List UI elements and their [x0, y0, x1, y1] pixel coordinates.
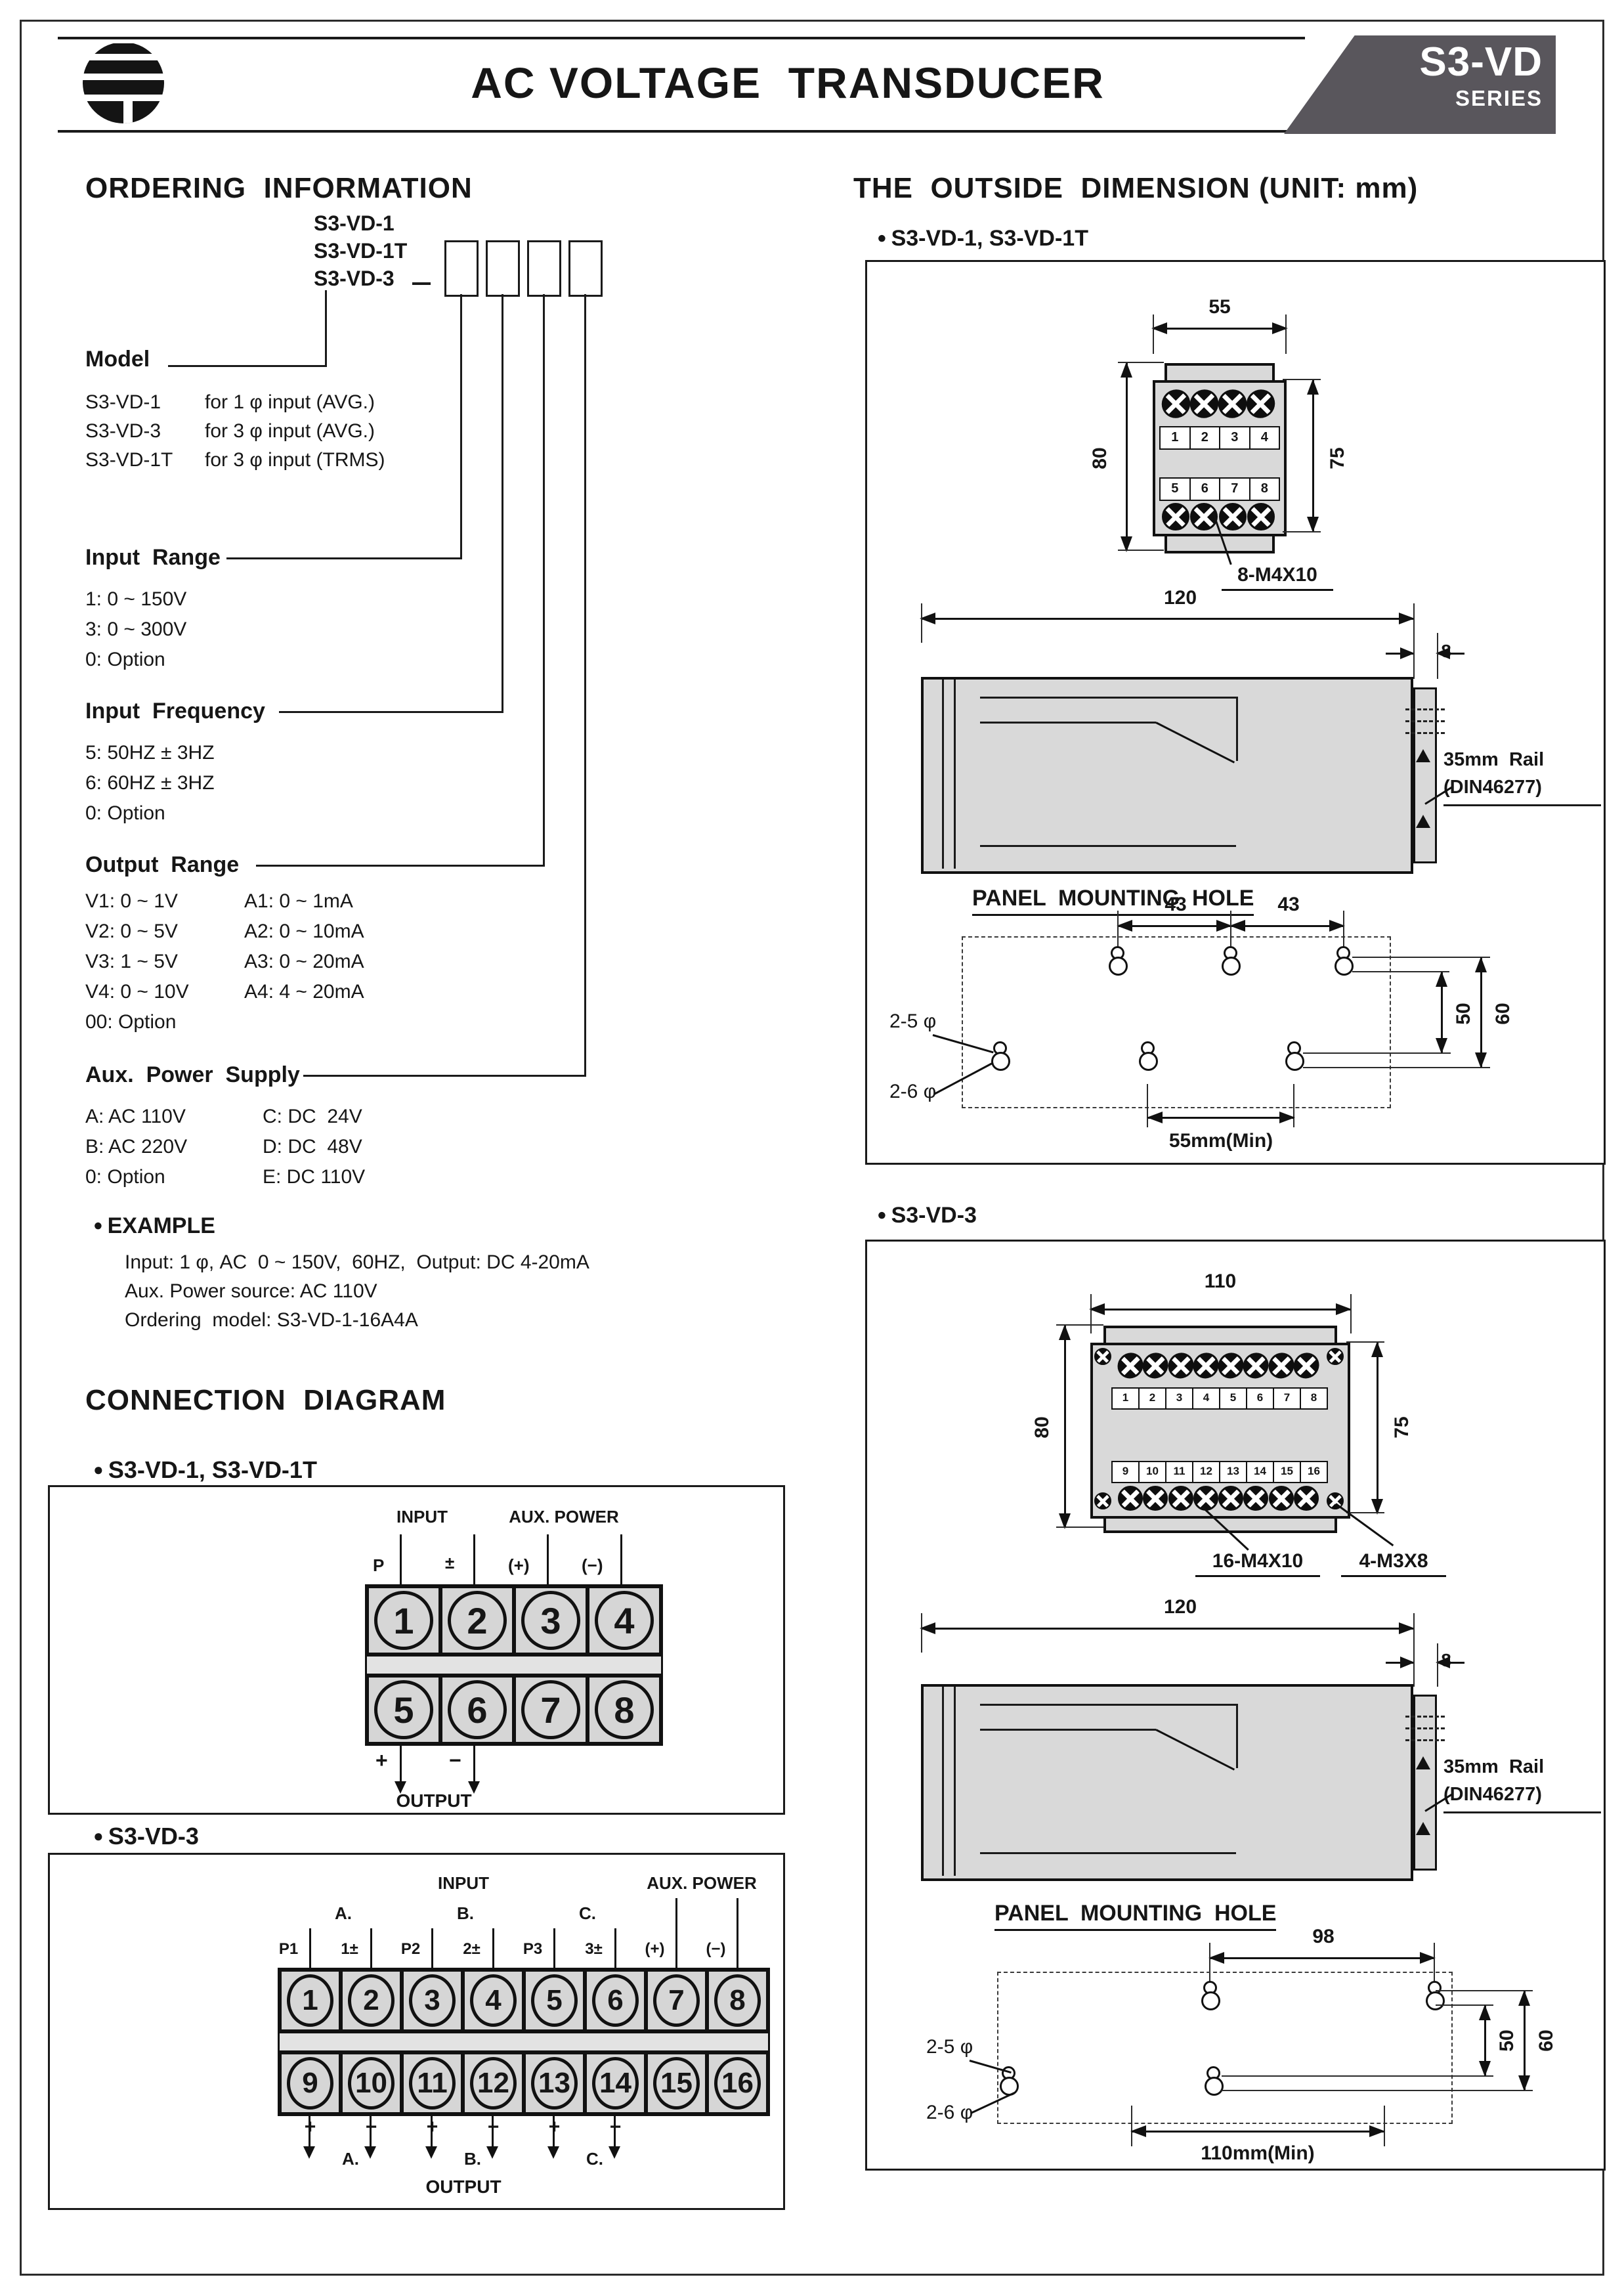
terminal: 3: [402, 1970, 463, 2031]
input-range-label: Input Range: [85, 545, 221, 571]
dim-width-label: 55: [1190, 296, 1249, 318]
keyhole-icon: [1201, 1981, 1218, 2010]
output-sign-row: +−+−+−: [280, 2116, 646, 2138]
pin-label: ±: [445, 1553, 454, 1573]
terminal: 14: [585, 2052, 646, 2114]
terminal: 9: [280, 2052, 341, 2114]
detail-line: [980, 1852, 1236, 1854]
rail-label-underline: [1443, 1811, 1601, 1813]
connector-line: [303, 1075, 584, 1077]
terminal-row-1: 1234: [367, 1586, 661, 1655]
diagram1-aux-label: AUX. POWER: [502, 1507, 626, 1527]
dimension-line: [921, 618, 1413, 620]
example-line: Ordering model: S3-VD-1-16A4A: [125, 1309, 418, 1332]
dim-label: 50: [1496, 2024, 1518, 2057]
keyhole-icon: [1426, 1981, 1443, 2010]
dimension-arrow: [1437, 1662, 1464, 1664]
dimension-line: [1524, 1991, 1526, 2090]
detail-line: [980, 1729, 1156, 1731]
unit-side-body: [921, 1684, 1413, 1881]
terminal-number: 3: [1166, 1389, 1193, 1408]
extension-line: [1352, 971, 1449, 972]
dim-label: 98: [1297, 1926, 1350, 1948]
hole-spec-label: 2-5 φ: [926, 2036, 973, 2058]
diagram1-input-label: INPUT: [373, 1507, 471, 1527]
keyhole-icon: [1139, 1041, 1156, 1071]
terminal-number: 8: [1250, 479, 1279, 500]
pin-label: P: [373, 1555, 384, 1576]
terminal: 11: [402, 2052, 463, 2114]
pin-label: 2±: [441, 1940, 502, 1959]
diagram2-frame: INPUT AUX. POWER A. B. C. P11±P22±P33±(+…: [48, 1853, 785, 2210]
terminal: 2: [440, 1586, 514, 1655]
pin-label: (+): [508, 1555, 530, 1576]
output-arrow: [370, 2113, 372, 2148]
terminal: 4: [588, 1586, 661, 1655]
detail-line: [1236, 1704, 1238, 1768]
input-range-item: 0: Option: [85, 649, 165, 671]
output-range-item: A1: 0 ~ 1mA: [244, 890, 353, 913]
model-row-code: S3-VD-1T: [85, 449, 173, 471]
corner-screw-label: 4-M3X8: [1341, 1550, 1446, 1577]
diagram1-frame: INPUT AUX. POWER P ± (+) (−) 1234 5678 +…: [48, 1485, 785, 1815]
output-arrow: [400, 1744, 402, 1783]
dimension-line: [921, 1628, 1413, 1630]
output-plus-sign: +: [375, 1748, 388, 1773]
keyhole-icon: [991, 1041, 1008, 1071]
extension-line: [1437, 1643, 1438, 1687]
dimension-arrow: [1437, 653, 1464, 655]
terminal-number: 4: [1250, 427, 1279, 448]
dim-height-label: 75: [1327, 442, 1349, 475]
extension-line: [1350, 1294, 1352, 1333]
terminal-number: 14: [1247, 1462, 1274, 1482]
terminal: 12: [463, 2052, 524, 2114]
pin-label-row: P11±P22±P33±(+)(−): [258, 1940, 746, 1959]
extension-line: [921, 1613, 922, 1653]
diagram2-output-label: OUTPUT: [414, 2177, 513, 2198]
extension-line: [1346, 1341, 1384, 1343]
logo-t-gap: [123, 101, 133, 123]
aux-power-label: Aux. Power Supply: [85, 1062, 300, 1088]
extension-line: [1118, 550, 1164, 551]
detail-line: [980, 845, 1236, 847]
dim-label: 43: [1153, 894, 1199, 916]
connector-line: [279, 711, 503, 713]
terminal-row-2: 5678: [367, 1676, 661, 1744]
detail-line: [980, 722, 1156, 724]
terminal: 10: [341, 2052, 402, 2114]
extension-line: [1118, 362, 1164, 363]
dimension-line: [1132, 2131, 1384, 2133]
dim-height-label: 80: [1089, 442, 1111, 475]
rail-mark: [1405, 708, 1445, 710]
phase-label: B.: [464, 2149, 481, 2169]
input-range-item: 3: 0 ~ 300V: [85, 618, 186, 641]
example-label: EXAMPLE: [93, 1213, 215, 1239]
diagram1-bullet: S3-VD-1, S3-VD-1T: [93, 1456, 317, 1484]
dimension-line: [1148, 1117, 1294, 1119]
extension-line: [1413, 1643, 1415, 1687]
aux-power-item: 0: Option: [85, 1166, 165, 1188]
order-model-3: S3-VD-3: [314, 267, 395, 291]
dimension-line: [1153, 328, 1287, 330]
screw-icon: [1289, 1481, 1324, 1516]
connection-heading: CONNECTION DIAGRAM: [85, 1384, 446, 1417]
phase-label: A.: [335, 1903, 352, 1924]
terminal: 8: [588, 1676, 661, 1744]
dim-label: 43: [1266, 894, 1312, 916]
connector-line: [325, 290, 327, 367]
dimension-line: [1126, 363, 1128, 551]
extension-line: [1056, 1527, 1103, 1528]
dim-width-label: 110: [1187, 1270, 1253, 1293]
output-arrow: [553, 2113, 555, 2148]
panel-hole-heading: PANEL MOUNTING HOLE: [972, 886, 1254, 916]
input-range-item: 1: 0 ~ 150V: [85, 588, 186, 611]
extension-line: [1222, 2090, 1533, 2091]
connector-line: [460, 294, 462, 559]
extension-line: [1222, 2075, 1493, 2077]
wire-line: [473, 1534, 475, 1584]
output-arrow: [614, 2113, 616, 2148]
order-dash: [412, 282, 431, 285]
aux-power-item: C: DC 24V: [263, 1106, 362, 1128]
extension-line: [1153, 314, 1154, 354]
phase-label: B.: [457, 1903, 474, 1924]
aux-power-item: E: DC 110V: [263, 1166, 365, 1188]
dimension-line: [1377, 1343, 1378, 1513]
terminal-number: 3: [1220, 427, 1250, 448]
terminal-number: 11: [1166, 1462, 1193, 1482]
dim1-frame: 55 1234 5678 80 75 8-M4X10 120 8: [865, 260, 1606, 1165]
terminal: 3: [514, 1586, 588, 1655]
dimension-line: [1231, 925, 1344, 927]
pin-label: P2: [380, 1940, 441, 1959]
terminal-number: 6: [1191, 479, 1221, 500]
terminal: 8: [707, 1970, 768, 2031]
rail-label: (DIN46277): [1443, 777, 1542, 798]
dim-width-label: 120: [1144, 587, 1216, 609]
output-arrow: [431, 2113, 433, 2148]
page-title: AC VOLTAGE TRANSDUCER: [276, 58, 1300, 108]
terminal-number: 2: [1140, 1389, 1166, 1408]
input-frequency-label: Input Frequency: [85, 699, 265, 724]
wire-line: [400, 1534, 402, 1584]
keyhole-icon: [1109, 946, 1126, 976]
terminal: 5: [524, 1970, 585, 2031]
terminal: 2: [341, 1970, 402, 2031]
output-arrow: [309, 2113, 310, 2148]
extension-line: [1285, 314, 1287, 354]
pin-label: 1±: [319, 1940, 380, 1959]
wire-line: [547, 1534, 549, 1584]
phase-label: C.: [579, 1903, 596, 1924]
rail-clip-icon: [1416, 815, 1430, 828]
model-section-label: Model: [85, 347, 150, 372]
terminal-number: 5: [1220, 1389, 1247, 1408]
example-line: Input: 1 φ, AC 0 ~ 150V, 60HZ, Output: D…: [125, 1251, 589, 1274]
detail-line: [1236, 697, 1238, 761]
input-frequency-item: 5: 50HZ ± 3HZ: [85, 742, 215, 764]
dimension-arrow: [1386, 1662, 1413, 1664]
input-frequency-item: 6: 60HZ ± 3HZ: [85, 772, 215, 794]
extension-line: [1283, 379, 1321, 380]
keyhole-icon: [1222, 946, 1239, 976]
terminal-number: 6: [1247, 1389, 1274, 1408]
diagram2-aux-label: AUX. POWER: [639, 1873, 764, 1894]
terminal-block: 12345678 910111213141516: [278, 1968, 770, 2116]
detail-line: [942, 680, 944, 869]
dimension-line: [1064, 1326, 1066, 1528]
output-range-item: A2: 0 ~ 10mA: [244, 921, 364, 943]
dimension-line: [1118, 925, 1231, 927]
pin-label: 3±: [563, 1940, 624, 1959]
dimension-line: [1441, 972, 1443, 1052]
pin-label: P1: [258, 1940, 319, 1959]
diagram2-bullet: S3-VD-3: [93, 1823, 199, 1850]
order-code-box-4: [568, 240, 603, 297]
order-code-box-3: [527, 240, 561, 297]
screw-row: [1162, 388, 1275, 420]
model-row-code: S3-VD-3: [85, 420, 161, 443]
dimension-line: [1480, 958, 1482, 1067]
dim2-bullet: S3-VD-3: [877, 1203, 977, 1228]
terminal-number: 10: [1140, 1462, 1166, 1482]
terminal: 4: [463, 1970, 524, 2031]
terminal-number: 4: [1193, 1389, 1220, 1408]
terminal: 1: [367, 1586, 440, 1655]
dim-height-label: 75: [1391, 1411, 1413, 1444]
rail-mark: [1405, 1727, 1445, 1729]
connector-line: [584, 294, 586, 1077]
header-rule-bottom: [58, 130, 1305, 133]
rail-label: (DIN46277): [1443, 1784, 1542, 1806]
output-arrow: [492, 2113, 494, 2148]
terminal: 16: [707, 2052, 768, 2114]
dimension-arrow: [1386, 653, 1413, 655]
terminal: 6: [440, 1676, 514, 1744]
diagram1-output-label: OUTPUT: [339, 1790, 529, 1811]
rail-label: 35mm Rail: [1443, 749, 1544, 771]
min-width-label: 110mm(Min): [1169, 2142, 1346, 2165]
terminal: 15: [646, 2052, 707, 2114]
rail-mark: [1405, 1716, 1445, 1718]
extension-line: [1056, 1324, 1103, 1326]
extension-line: [1303, 1067, 1490, 1068]
terminal-number: 2: [1191, 427, 1221, 448]
rail-clip-icon: [1416, 749, 1430, 762]
unit-cap: [1165, 534, 1275, 553]
terminal-number: 5: [1161, 479, 1191, 500]
detail-line: [942, 1687, 944, 1876]
panel-outline: [997, 1972, 1453, 2124]
screw-spec-label: 16-M4X10: [1195, 1550, 1320, 1577]
terminal-number: 9: [1113, 1462, 1140, 1482]
terminal-number: 15: [1274, 1462, 1301, 1482]
rail-mark: [1405, 732, 1445, 734]
wire-line: [675, 1898, 677, 1970]
rail-mark: [1405, 1739, 1445, 1741]
dim-width-label: 120: [1144, 1596, 1216, 1618]
terminal-number: 12: [1193, 1462, 1220, 1482]
pin-label: (+): [624, 1940, 685, 1959]
logo-stripe: [83, 43, 164, 54]
extension-line: [1352, 957, 1490, 958]
rail-clip-icon: [1416, 1756, 1430, 1769]
diagram2-input-label: INPUT: [417, 1873, 509, 1894]
extension-line: [1413, 633, 1415, 679]
terminal: 7: [646, 1970, 707, 2031]
model-row-desc: for 3 φ input (TRMS): [205, 449, 385, 471]
unit-side-body: [921, 677, 1413, 874]
hole-spec-label: 2-6 φ: [889, 1081, 936, 1103]
header-rule-top: [58, 37, 1305, 39]
wire-line: [737, 1898, 738, 1970]
terminal-separator: [367, 1655, 661, 1676]
terminal-row-1: 12345678: [280, 1970, 768, 2031]
output-range-item: A4: 4 ~ 20mA: [244, 981, 364, 1003]
terminal-row-2: 910111213141516: [280, 2052, 768, 2114]
output-range-item: A3: 0 ~ 20mA: [244, 951, 364, 973]
terminal-number: 13: [1220, 1462, 1247, 1482]
dim-label: 60: [1535, 2024, 1558, 2057]
pin-label: (−): [685, 1940, 746, 1959]
panel-outline: [962, 936, 1391, 1108]
terminal: 13: [524, 2052, 585, 2114]
pin-label: (−): [582, 1555, 603, 1576]
dim-label: 50: [1453, 997, 1475, 1030]
wire-line: [620, 1534, 622, 1584]
terminal-number: 7: [1274, 1389, 1301, 1408]
dimension-heading: THE OUTSIDE DIMENSION (UNIT: mm): [853, 172, 1418, 205]
keyhole-icon: [1335, 946, 1352, 976]
example-line: Aux. Power source: AC 110V: [125, 1280, 377, 1303]
dim2-frame: 110 12345678 910111213141516 80 75 16-M4…: [865, 1240, 1606, 2171]
terminal-number: 16: [1301, 1462, 1327, 1482]
output-range-item: V1: 0 ~ 1V: [85, 890, 178, 913]
connector-line: [256, 865, 544, 867]
dimension-line: [1210, 1957, 1434, 1959]
aux-power-item: D: DC 48V: [263, 1136, 362, 1158]
series-badge-series: SERIES: [1284, 85, 1543, 112]
terminal: 5: [367, 1676, 440, 1744]
output-arrow: [473, 1744, 475, 1783]
terminal-number: 7: [1220, 479, 1250, 500]
aux-power-item: A: AC 110V: [85, 1106, 186, 1128]
hole-spec-label: 2-6 φ: [926, 2102, 973, 2124]
dimension-line: [1312, 380, 1314, 531]
screw-row: [1118, 1351, 1319, 1381]
detail-line: [980, 1704, 1236, 1706]
terminal-strip: 910111213141516: [1111, 1461, 1328, 1483]
keyhole-icon: [1285, 1041, 1302, 1071]
extension-line: [921, 603, 922, 643]
output-range-item: V3: 1 ~ 5V: [85, 951, 178, 973]
extension-line: [1303, 1052, 1451, 1054]
terminal: 7: [514, 1676, 588, 1744]
phase-label: A.: [342, 2149, 359, 2169]
logo-stripe: [83, 60, 164, 74]
order-model-1: S3-VD-1: [314, 211, 395, 236]
output-range-item: V2: 0 ~ 5V: [85, 921, 178, 943]
terminal-number: 1: [1161, 427, 1191, 448]
order-code-box-1: [444, 240, 479, 297]
connector-line: [543, 294, 545, 867]
connector-line: [226, 557, 461, 559]
connector-line: [168, 365, 326, 367]
terminal-separator: [280, 2031, 768, 2052]
aux-power-item: B: AC 220V: [85, 1136, 187, 1158]
terminal-strip: 5678: [1159, 477, 1280, 501]
rail-label-underline: [1443, 804, 1601, 806]
min-width-label: 55mm(Min): [1148, 1130, 1294, 1152]
output-range-item: V4: 0 ~ 10V: [85, 981, 189, 1003]
model-row-code: S3-VD-1: [85, 391, 161, 414]
extension-line: [1346, 1512, 1384, 1513]
output-minus-sign: −: [449, 1748, 461, 1773]
brand-logo-icon: [83, 42, 164, 123]
dimension-line: [1484, 2006, 1486, 2075]
screw-row: [1118, 1484, 1319, 1512]
phase-label: C.: [586, 2149, 603, 2169]
terminal-strip: 12345678: [1111, 1387, 1328, 1410]
keyhole-icon: [1205, 2066, 1222, 2096]
screw-icon: [1241, 497, 1280, 536]
detail-line: [954, 1687, 956, 1876]
detail-line: [954, 680, 956, 869]
terminal-strip: 1234: [1159, 426, 1280, 450]
rail-clip-icon: [1416, 1822, 1430, 1835]
model-row-desc: for 1 φ input (AVG.): [205, 391, 375, 414]
logo-stripe: [83, 80, 164, 95]
dim-label: 60: [1492, 997, 1514, 1030]
terminal: 6: [585, 1970, 646, 2031]
pin-label: P3: [502, 1940, 563, 1959]
rail-mark: [1405, 720, 1445, 722]
dim-height-label: 80: [1031, 1411, 1054, 1444]
terminal-number: 1: [1113, 1389, 1140, 1408]
din-rail-strip: [1413, 687, 1437, 863]
terminal-block: 1234 5678: [365, 1584, 663, 1746]
rail-label: 35mm Rail: [1443, 1756, 1544, 1778]
hole-spec-label: 2-5 φ: [889, 1010, 936, 1033]
input-frequency-item: 0: Option: [85, 802, 165, 825]
leader-line: [1335, 1503, 1394, 1546]
extension-line: [1090, 1294, 1092, 1333]
screw-spec-label: 8-M4X10: [1222, 564, 1333, 591]
ordering-heading: ORDERING INFORMATION: [85, 172, 473, 205]
model-row-desc: for 3 φ input (AVG.): [205, 420, 375, 443]
extension-line: [1437, 633, 1438, 679]
dimension-line: [1090, 1309, 1350, 1310]
dim1-bullet: S3-VD-1, S3-VD-1T: [877, 226, 1088, 251]
panel-hole-heading: PANEL MOUNTING HOLE: [994, 1901, 1276, 1931]
order-model-2: S3-VD-1T: [314, 239, 407, 263]
din-rail-strip: [1413, 1695, 1437, 1871]
detail-line: [980, 697, 1236, 699]
extension-line: [1283, 531, 1321, 532]
order-code-box-2: [486, 240, 520, 297]
terminal-number: 8: [1301, 1389, 1327, 1408]
output-range-label: Output Range: [85, 852, 239, 878]
terminal: 1: [280, 1970, 341, 2031]
output-range-item: 00: Option: [85, 1011, 176, 1033]
connector-line: [502, 294, 503, 713]
